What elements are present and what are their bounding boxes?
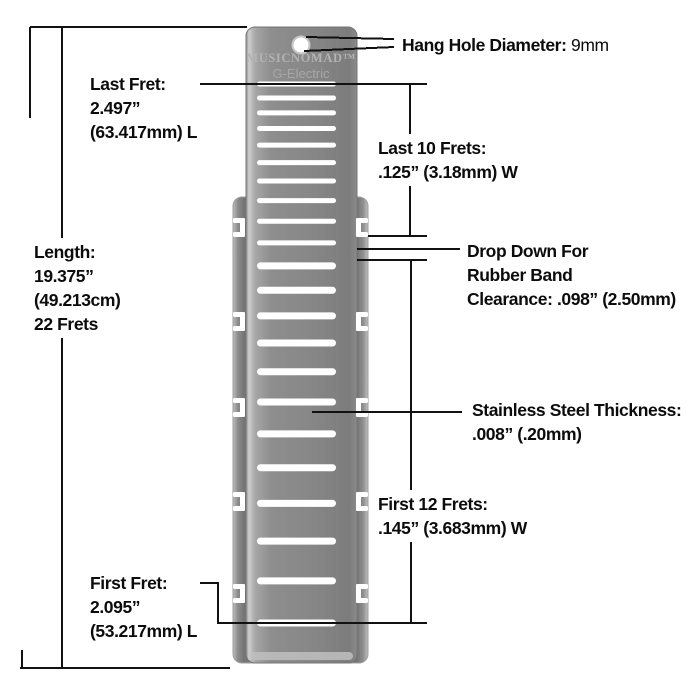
- annotation-line: .125” (3.18mm) W: [378, 160, 518, 184]
- annotation-last-fret: Last Fret: 2.497” (63.417mm) L: [87, 70, 200, 146]
- brand-logo-text: MUSICNOMAD™: [246, 51, 355, 65]
- fret-slot: [257, 430, 336, 437]
- annotation-line: 19.375”: [34, 264, 120, 288]
- annotation-first-fret: First Fret: 2.095” (53.217mm) L: [87, 569, 200, 645]
- annotation-line: (63.417mm) L: [90, 120, 197, 144]
- annotation-drop-down: Drop Down For Rubber Band Clearance: .09…: [464, 237, 679, 313]
- bottom-edge-highlight: [250, 652, 353, 660]
- edge-highlight: [248, 30, 252, 660]
- annotation-line: 2.095”: [90, 595, 197, 619]
- fret-slot: [257, 179, 336, 184]
- notch-cut: [356, 598, 368, 603]
- fret-slot: [257, 312, 336, 319]
- fret-slot: [257, 96, 336, 101]
- fret-slot: [257, 160, 336, 165]
- annotation-thickness: Stainless Steel Thickness: .008” (.20mm): [469, 396, 684, 448]
- fret-slot: [257, 126, 336, 131]
- annotation-line: Length:: [34, 240, 120, 264]
- fret-slot: [257, 262, 336, 269]
- annotation-line: Last 10 Frets:: [378, 136, 518, 160]
- annotation-line: First 12 Frets:: [378, 492, 527, 516]
- annotation-hang-hole: Hang Hole Diameter: 9mm: [399, 31, 612, 59]
- fret-slot: [257, 464, 336, 471]
- fret-slot: [257, 219, 336, 224]
- annotation-line: 2.497”: [90, 96, 197, 120]
- notch-cut: [233, 412, 245, 417]
- hang-hole-label: Hang Hole Diameter:: [402, 35, 567, 55]
- annotation-line: Drop Down For: [467, 239, 676, 263]
- annotation-line: First Fret:: [90, 571, 197, 595]
- annotation-line: (49.213cm): [34, 288, 120, 312]
- fret-slot: [257, 368, 336, 375]
- annotation-line: (53.217mm) L: [90, 619, 197, 643]
- annotation-line: Stainless Steel Thickness:: [472, 398, 681, 422]
- fret-slot: [257, 577, 336, 584]
- annotation-last-10-frets: Last 10 Frets: .125” (3.18mm) W: [375, 134, 521, 186]
- annotation-first-12-frets: First 12 Frets: .145” (3.683mm) W: [375, 490, 530, 542]
- fret-slot: [257, 240, 336, 245]
- annotation-line: .145” (3.683mm) W: [378, 516, 527, 540]
- annotation-line: Last Fret:: [90, 72, 197, 96]
- hang-hole-value: 9mm: [571, 35, 609, 55]
- model-text: G-Electric: [272, 66, 330, 81]
- fret-slot: [257, 500, 336, 507]
- fret-slot: [257, 340, 336, 347]
- fret-slot: [257, 287, 336, 294]
- fret-slot: [257, 198, 336, 203]
- annotation-line: Clearance: .098” (2.50mm): [467, 287, 676, 311]
- notch-cut: [356, 326, 368, 331]
- notch-cut: [356, 506, 368, 511]
- fret-slot: [257, 538, 336, 545]
- fret-slot: [257, 399, 336, 406]
- annotation-length: Length: 19.375” (49.213cm) 22 Frets: [31, 238, 123, 338]
- notch-cut: [356, 232, 368, 237]
- annotation-line: Rubber Band: [467, 263, 676, 287]
- fret-slot: [257, 143, 336, 148]
- annotation-line: 22 Frets: [34, 312, 120, 336]
- notch-cut: [233, 506, 245, 511]
- fret-shield-measurement-diagram: MUSICNOMAD™ G-Electric: [0, 0, 700, 700]
- fret-slot: [257, 110, 336, 115]
- notch-cut: [233, 232, 245, 237]
- notch-cut: [233, 326, 245, 331]
- notch-cut: [233, 598, 245, 603]
- annotation-line: .008” (.20mm): [472, 422, 681, 446]
